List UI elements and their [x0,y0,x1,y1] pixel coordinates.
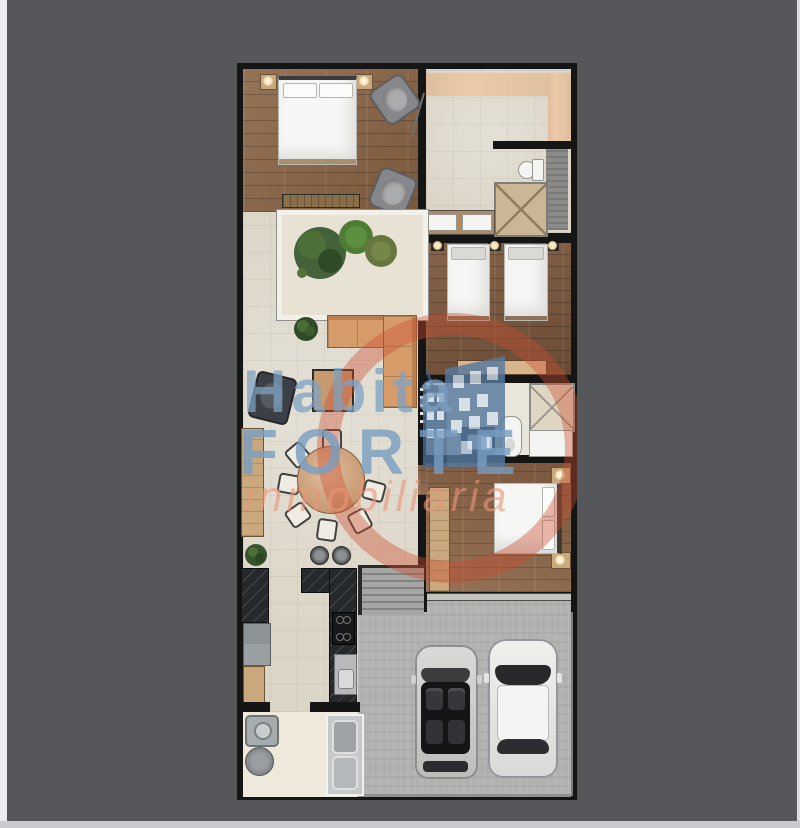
wall-lamp [431,243,444,251]
car-seat [448,720,465,744]
washer [245,715,279,747]
nightstand-right [355,74,373,90]
pillow [319,83,353,98]
pillow [451,247,486,260]
pillow [283,83,317,98]
master-bed [278,76,357,165]
twin-bed-1 [447,244,490,321]
car-rear-window [497,739,549,754]
plant-pot-living [293,316,320,343]
car-right [488,639,558,778]
car-seat [426,720,443,744]
car-mirror [411,675,416,684]
bar-stool [310,546,329,565]
washer-door [254,722,272,740]
bedroom-bench [282,194,360,208]
laundry-basin-2 [332,756,358,790]
car-seat [426,688,443,710]
kitchen-bottom-wall-a [243,702,270,712]
sink [462,214,492,231]
linen-closet [546,149,568,230]
twin-bed-2 [504,244,548,321]
shower-1 [494,182,548,237]
bed-footboard [279,159,356,164]
kitchen-bottom-wall-b [310,702,360,712]
car-mirror [484,673,489,683]
nightstand-3b [551,552,571,569]
plant-pot-dining [244,542,269,569]
laundry-sink-unit [326,714,364,796]
image-viewer-background: Habita FORTE inmobiliaria [0,0,800,828]
kitchen-counter-left [241,568,269,623]
courtyard [277,210,428,320]
car-roof [497,685,549,741]
car-mirror [477,675,482,684]
water-heater [245,747,274,776]
sink-basin [338,669,354,689]
refrigerator [243,623,271,666]
watermark-text-inmobiliaria: inmobiliaria [245,473,510,522]
kitchen-sink [334,654,357,695]
kitchen-cabinet [243,666,265,704]
bathroom1-wall [493,141,571,149]
car-seat [448,688,465,710]
toilet-tank [532,159,544,181]
nightstand-left [260,74,277,90]
toilet-1 [518,159,543,179]
courtyard-plants [282,215,413,305]
bar-stool [332,546,351,565]
burner [343,633,351,641]
stove [332,612,355,645]
laundry-basin-1 [332,720,358,754]
car-open-cabin [421,682,470,754]
burner [343,616,351,624]
garage-door [427,593,571,601]
entry-corridor-peach-right [548,73,571,143]
page-edge-bottom [0,821,800,828]
driveway-edge [358,794,571,797]
bed-foot [505,316,547,320]
sink [427,214,457,231]
floor-plan: Habita FORTE inmobiliaria [237,63,577,800]
pillow [508,247,544,260]
car-left [415,645,478,779]
car-windshield [495,665,551,685]
car-mirror [557,673,562,683]
car-windshield [421,668,470,683]
car-rear-window [423,761,468,772]
double-vanity [424,210,495,235]
page-edge-left [0,0,7,828]
